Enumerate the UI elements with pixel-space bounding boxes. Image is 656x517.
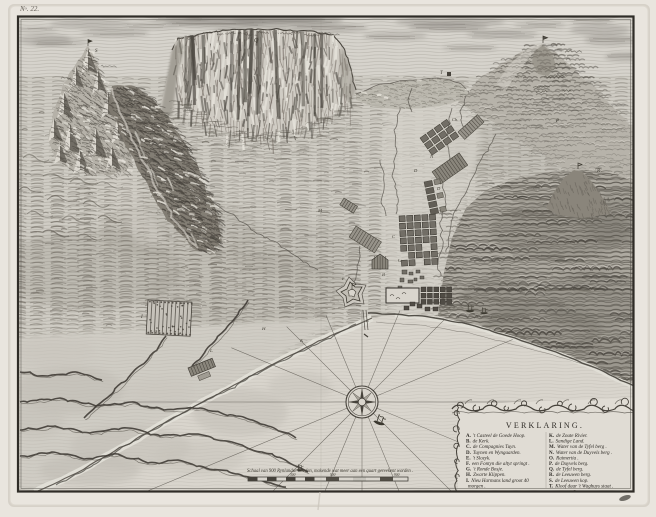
svg-text:Q: Q xyxy=(254,38,259,44)
svg-text:N.Water van de Duyvels berg .: N.Water van de Duyvels berg . xyxy=(549,451,612,456)
svg-text:E.'t Slozyk.: E.'t Slozyk. xyxy=(466,456,490,461)
svg-text:No. 22.: No. 22. xyxy=(19,5,39,13)
svg-text:O.Raimertia .: O.Raimertia . xyxy=(549,456,579,461)
svg-text:I.Nieu Harmans land groot 40: I.Nieu Harmans land groot 40 xyxy=(466,479,529,484)
svg-text:F.een Fontyn die altyt springt: F.een Fontyn die altyt springt . xyxy=(466,462,530,467)
svg-text:D.Tuynen en Wyngaarden.: D.Tuynen en Wyngaarden. xyxy=(466,451,521,456)
svg-text:B: B xyxy=(382,273,385,278)
svg-text:900: 900 xyxy=(394,473,400,477)
svg-text:VERKLARING.: VERKLARING. xyxy=(506,421,584,430)
svg-text:Q.de Tyfel berg.: Q.de Tyfel berg. xyxy=(549,468,583,473)
svg-text:L: L xyxy=(209,349,213,354)
svg-text:I: I xyxy=(140,315,143,320)
svg-text:R: R xyxy=(596,169,600,174)
svg-text:Ch.: Ch. xyxy=(452,117,458,122)
svg-text:300: 300 xyxy=(290,473,296,477)
svg-text:M.Water van de Tyfel berg .: M.Water van de Tyfel berg . xyxy=(549,445,607,450)
svg-text:G: G xyxy=(398,259,402,264)
svg-text:P: P xyxy=(555,119,559,124)
svg-text:500: 500 xyxy=(330,473,336,477)
svg-text:R.de Leeuwen berg.: R.de Leeuwen berg. xyxy=(549,473,591,478)
svg-text:N: N xyxy=(429,155,434,160)
svg-text:P.de Duyvels berg.: P.de Duyvels berg. xyxy=(549,462,588,467)
svg-text:C.de Compagnies Tuyn.: C.de Compagnies Tuyn. xyxy=(466,445,516,450)
svg-text:E: E xyxy=(365,319,369,324)
svg-text:S.de Leeuwen kop.: S.de Leeuwen kop. xyxy=(549,479,589,484)
svg-text:A.'t Casteel de Goede Hoop.: A.'t Casteel de Goede Hoop. xyxy=(466,434,525,439)
svg-text:K: K xyxy=(299,339,304,344)
svg-text:H: H xyxy=(261,327,266,332)
svg-text:B.de Kerk.: B.de Kerk. xyxy=(466,440,490,445)
svg-text:M: M xyxy=(317,209,323,214)
